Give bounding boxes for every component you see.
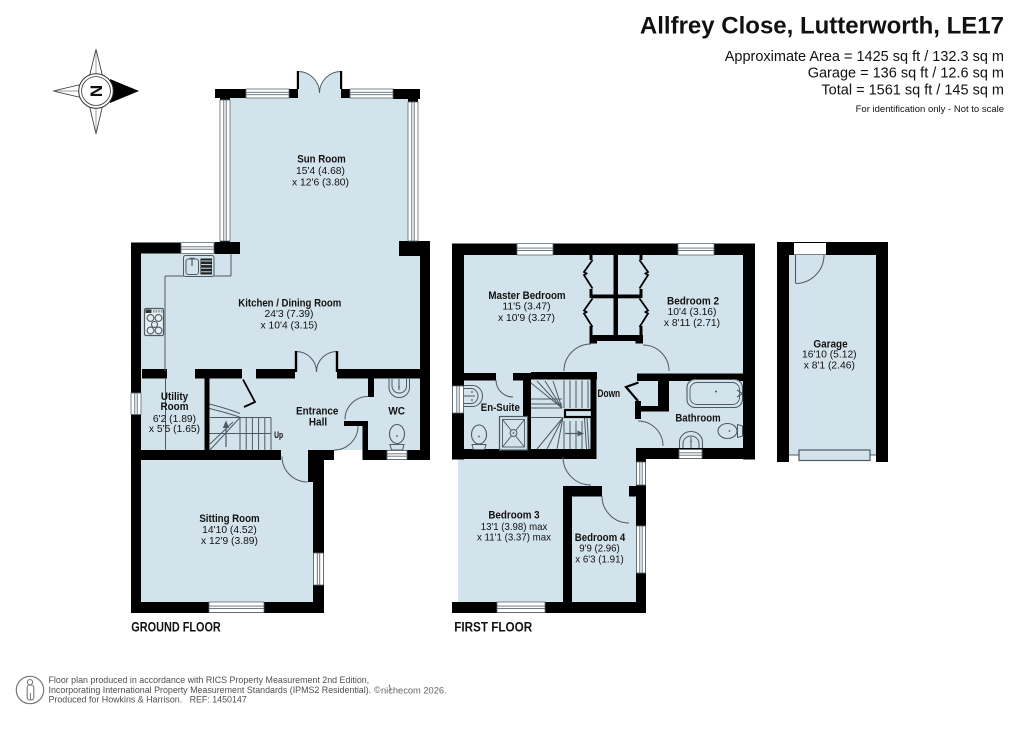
svg-text:x 12'9 (3.89): x 12'9 (3.89) [201,536,258,547]
svg-text:Entrance: Entrance [296,405,338,417]
svg-text:Bedroom 3: Bedroom 3 [488,510,539,522]
svg-text:11'5 (3.47): 11'5 (3.47) [502,302,550,313]
svg-text:Floor plan produced in accorda: Floor plan produced in accordance with R… [49,675,370,685]
svg-text:Garage = 136 sq ft / 12.6 sq m: Garage = 136 sq ft / 12.6 sq m [808,66,1004,82]
svg-text:13'1 (3.98) max: 13'1 (3.98) max [481,522,548,533]
svg-text:N: N [87,85,106,97]
svg-text:Incorporating International Pr: Incorporating International Property Mea… [49,685,372,695]
svg-text:x 10'9 (3.27): x 10'9 (3.27) [498,313,555,324]
svg-text:15'4 (4.68): 15'4 (4.68) [296,166,345,177]
svg-text:Master Bedroom: Master Bedroom [488,290,565,302]
svg-text:Bedroom 4: Bedroom 4 [575,532,626,544]
svg-text:9'9 (2.96): 9'9 (2.96) [579,543,620,554]
svg-text:WC: WC [388,405,405,417]
svg-text:Down: Down [598,388,621,400]
svg-text:Up: Up [274,430,283,441]
svg-text:x 12'6 (3.80): x 12'6 (3.80) [292,177,349,188]
svg-text:Kitchen / Dining Room: Kitchen / Dining Room [238,298,341,310]
svg-text:En-Suite: En-Suite [481,402,520,414]
svg-text:Hall: Hall [309,417,327,429]
svg-text:Sun Room: Sun Room [297,154,346,166]
svg-text:FIRST FLOOR: FIRST FLOOR [454,620,532,635]
svg-text:x 10'4 (3.15): x 10'4 (3.15) [261,321,318,332]
svg-text:GROUND FLOOR: GROUND FLOOR [131,619,221,634]
svg-text:Allfrey Close, Lutterworth, LE: Allfrey Close, Lutterworth, LE17 [640,13,1004,40]
svg-text:x 5'5 (1.65): x 5'5 (1.65) [149,424,200,435]
svg-text:Produced for Howkins & Harriso: Produced for Howkins & Harrison. REF: 14… [49,695,247,705]
svg-text:x 8'11 (2.71): x 8'11 (2.71) [664,318,720,329]
svg-text:Total = 1561 sq ft / 145 sq m: Total = 1561 sq ft / 145 sq m [821,82,1004,98]
svg-text:16'10 (5.12): 16'10 (5.12) [802,350,857,361]
svg-text:Bedroom 2: Bedroom 2 [667,296,719,308]
svg-text:Sitting Room: Sitting Room [199,513,259,525]
svg-text:x 11'1 (3.37) max: x 11'1 (3.37) max [477,533,552,544]
svg-text:For identification only - Not: For identification only - Not to scale [856,104,1004,115]
svg-text:14'10 (4.52): 14'10 (4.52) [202,525,257,536]
svg-text:x 6'3 (1.91): x 6'3 (1.91) [575,554,624,565]
svg-text:Bathroom: Bathroom [675,413,720,425]
svg-text:x 8'1 (2.46): x 8'1 (2.46) [804,361,855,372]
svg-text:10'4 (3.16): 10'4 (3.16) [668,307,717,318]
svg-text:Approximate Area = 1425 sq ft: Approximate Area = 1425 sq ft / 132.3 sq… [725,49,1004,65]
svg-text:©: © [374,685,381,695]
svg-text:24'3 (7.39): 24'3 (7.39) [265,309,314,320]
svg-text:Room: Room [161,401,189,413]
